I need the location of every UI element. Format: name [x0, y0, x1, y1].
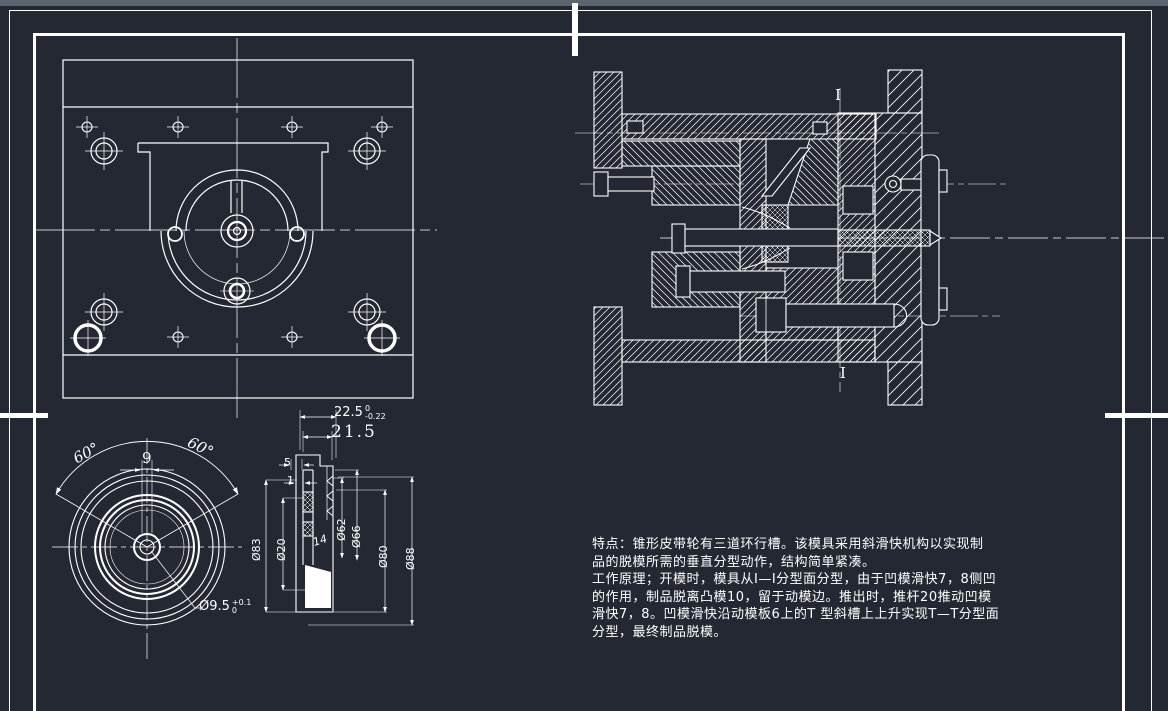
- bottom-bolt-head: [756, 298, 786, 332]
- dim-dia-80: Ø80: [378, 545, 389, 568]
- core-screw-head: [594, 172, 608, 196]
- core-rod: [685, 229, 838, 246]
- support-plate: [622, 141, 740, 166]
- bushing-pocket-lower: [843, 252, 873, 280]
- dim-bore: Ø9.5 +0.1 0: [199, 600, 251, 615]
- dim-step-1: 1: [287, 475, 294, 486]
- clamp-plate-top-left: [594, 72, 622, 168]
- core-screw-shaft: [608, 177, 654, 191]
- dim-dia-88: Ø88: [405, 547, 416, 570]
- guide-pin-holes: [85, 132, 386, 331]
- slide-wedge-upper: [788, 139, 838, 205]
- fixed-clamp-flange-top: [888, 70, 922, 113]
- bottom-plate: [622, 340, 875, 362]
- threaded-core-screw: [838, 230, 930, 246]
- bottom-bolt-shaft: [786, 304, 894, 327]
- top-plate-screw2: [813, 122, 827, 134]
- dim-dia-20: Ø20: [276, 538, 287, 561]
- core-block-upper: [652, 166, 740, 205]
- tolerance-stack: 0 -0.22: [365, 405, 386, 421]
- dim-dia-62: Ø62: [336, 518, 347, 541]
- section-mark-bottom: I: [840, 366, 846, 381]
- note-line: 分型，最终制品脱模。: [592, 624, 1062, 642]
- ejector-rod: [690, 271, 785, 292]
- dim-value: 22.5: [334, 406, 363, 419]
- cad-viewport[interactable]: 22.5 0 -0.22 21.5 5 1 Ø83 Ø20 Ø62 Ø66 Ø8…: [0, 0, 1168, 711]
- dim-height-toleranced: 22.5 0 -0.22: [334, 406, 386, 421]
- section-mark-top: I: [835, 88, 841, 103]
- dim-height-inner: 21.5: [331, 424, 377, 441]
- locating-bump-bottom: [939, 288, 947, 310]
- dim-dia-83: Ø83: [251, 538, 262, 561]
- belt-grooves: [327, 476, 333, 516]
- cavity-hook-right: [290, 227, 304, 241]
- fixed-clamp-flange-bottom: [888, 362, 922, 405]
- dim-slot-width: 9: [142, 451, 152, 466]
- ejector-rod-cap: [676, 266, 690, 297]
- cavity-hook-left: [168, 227, 182, 241]
- hub-solid-section: [305, 565, 331, 608]
- part-section-view: [296, 455, 333, 612]
- section-view: [575, 70, 1165, 405]
- screw-plug-holes: [70, 320, 400, 356]
- plan-view: [35, 38, 437, 420]
- note-line: 品的脱模所需的垂直分型动作，结构简单紧凑。: [592, 554, 1062, 572]
- small-bolt-holes: [76, 116, 393, 348]
- locating-bump-top: [939, 170, 947, 192]
- bushing-pocket-upper: [843, 186, 873, 214]
- top-plate-screw: [627, 121, 643, 133]
- tolerance-stack: +0.1 0: [232, 599, 251, 615]
- note-line: 工作原理；开模时，模具从I—I分型面分型，由于凹模滑快7，8侧凹: [592, 571, 1062, 589]
- note-line: 特点：锥形皮带轮有三道环行槽。该模具采用斜滑快机构以实现制: [592, 536, 1062, 554]
- dim-dia-66: Ø66: [351, 525, 362, 548]
- note-line: 的作用，制品脱离凸模10，留于动模边。推出时，推杆20推动凹模: [592, 589, 1062, 607]
- core-rod-cap: [672, 224, 685, 253]
- description-text: 特点：锥形皮带轮有三道环行槽。该模具采用斜滑快机构以实现制 品的脱模所需的垂直分…: [592, 536, 1062, 642]
- note-line: 滑快7，8。凹模滑快沿动模板6上的T 型斜槽上上升实现T—T分型面: [592, 606, 1062, 624]
- dim-value: Ø9.5: [199, 600, 230, 613]
- dim-step-5: 5: [284, 457, 291, 468]
- clamp-plate-bottom-left: [594, 307, 622, 405]
- end-view: [52, 438, 242, 662]
